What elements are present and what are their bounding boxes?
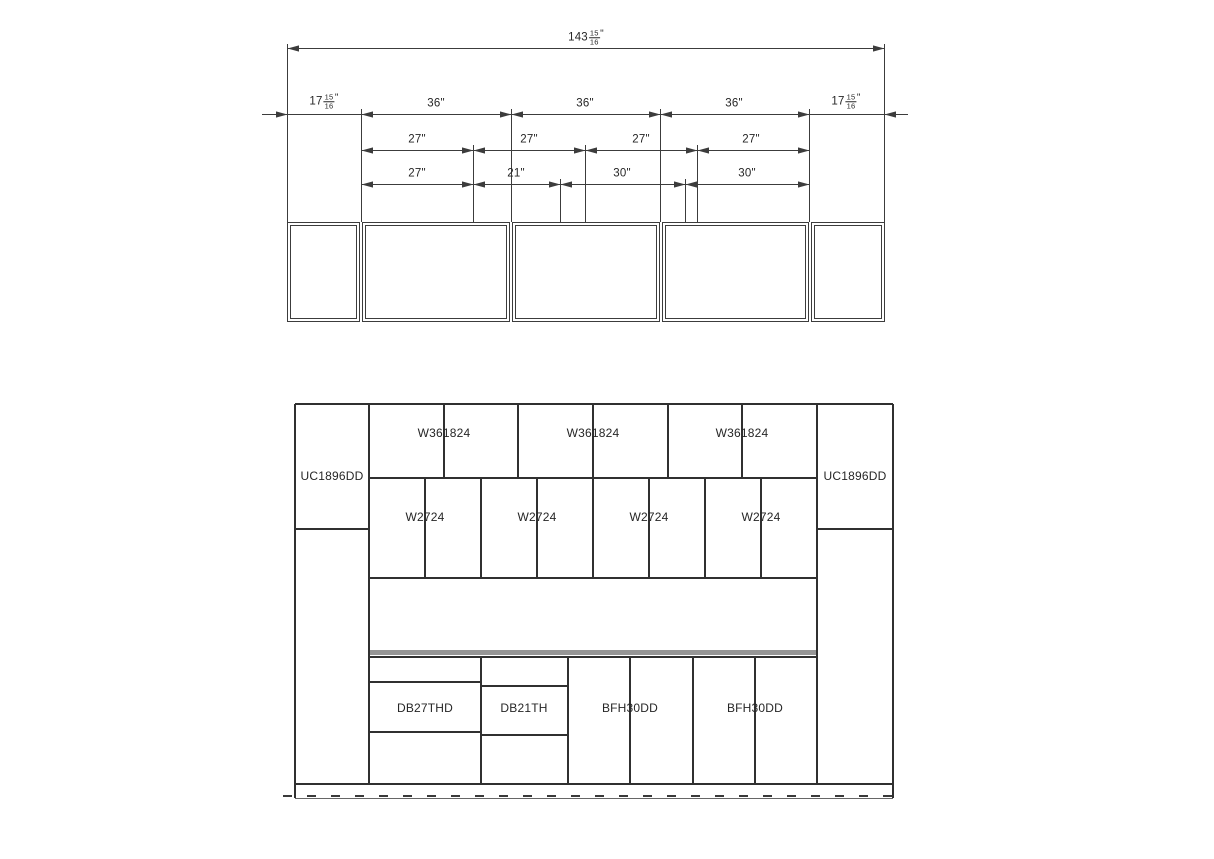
cabinet-label-uc-left: UC1896DD [301, 470, 364, 482]
plan-box-mid3-inner [666, 226, 806, 319]
dim-label-36-c: 36" [725, 98, 742, 110]
plan-cabinet-boxes [288, 223, 885, 322]
dim-label-27-c: 27" [632, 134, 649, 146]
plan-box-left-inner [291, 226, 357, 319]
plan-box-mid1-inner [366, 226, 507, 319]
plan-box-mid2-outer [513, 223, 660, 322]
cabinet-label-db27thd: DB27THD [397, 702, 453, 714]
plan-extension-lines [288, 44, 885, 222]
plan-box-right-inner [815, 226, 882, 319]
plan-box-mid2-inner [516, 226, 657, 319]
plan-view [262, 44, 908, 322]
plan-box-left-outer [288, 223, 360, 322]
dim-label-30-base-a: 30" [613, 168, 630, 180]
plan-box-mid1-outer [363, 223, 510, 322]
dim-label-27-b: 27" [520, 134, 537, 146]
cabinet-label-w2724-2: W2724 [517, 511, 556, 523]
dim-label-total: 1431516" [568, 29, 604, 47]
dim-label-36-b: 36" [576, 98, 593, 110]
cabinet-drawing-page: 1431516" 171516" 36" 36" 36" 171516" 27"… [0, 0, 1214, 859]
cabinet-label-w361824-3: W361824 [716, 427, 769, 439]
cabinet-label-w2724-1: W2724 [405, 511, 444, 523]
cabinet-label-w2724-3: W2724 [629, 511, 668, 523]
cabinet-label-w2724-4: W2724 [741, 511, 780, 523]
elevation-view [283, 404, 903, 799]
dim-label-21-base: 21" [507, 168, 524, 180]
dim-label-30-base-b: 30" [738, 168, 755, 180]
countertop [369, 650, 817, 655]
plan-box-mid3-outer [663, 223, 809, 322]
dim-label-17-left: 171516" [309, 93, 338, 111]
plan-box-right-outer [812, 223, 885, 322]
dim-label-17-right: 171516" [831, 93, 860, 111]
dim-label-27-a: 27" [408, 134, 425, 146]
cabinet-label-db21th: DB21TH [500, 702, 547, 714]
cabinet-label-w361824-1: W361824 [418, 427, 471, 439]
cabinet-label-uc-right: UC1896DD [824, 470, 887, 482]
dim-label-27-d: 27" [742, 134, 759, 146]
cabinet-label-bfh30dd-1: BFH30DD [602, 702, 658, 714]
dim-label-36-a: 36" [427, 98, 444, 110]
cabinet-label-bfh30dd-2: BFH30DD [727, 702, 783, 714]
dim-label-27-base: 27" [408, 168, 425, 180]
cabinet-label-w361824-2: W361824 [567, 427, 620, 439]
